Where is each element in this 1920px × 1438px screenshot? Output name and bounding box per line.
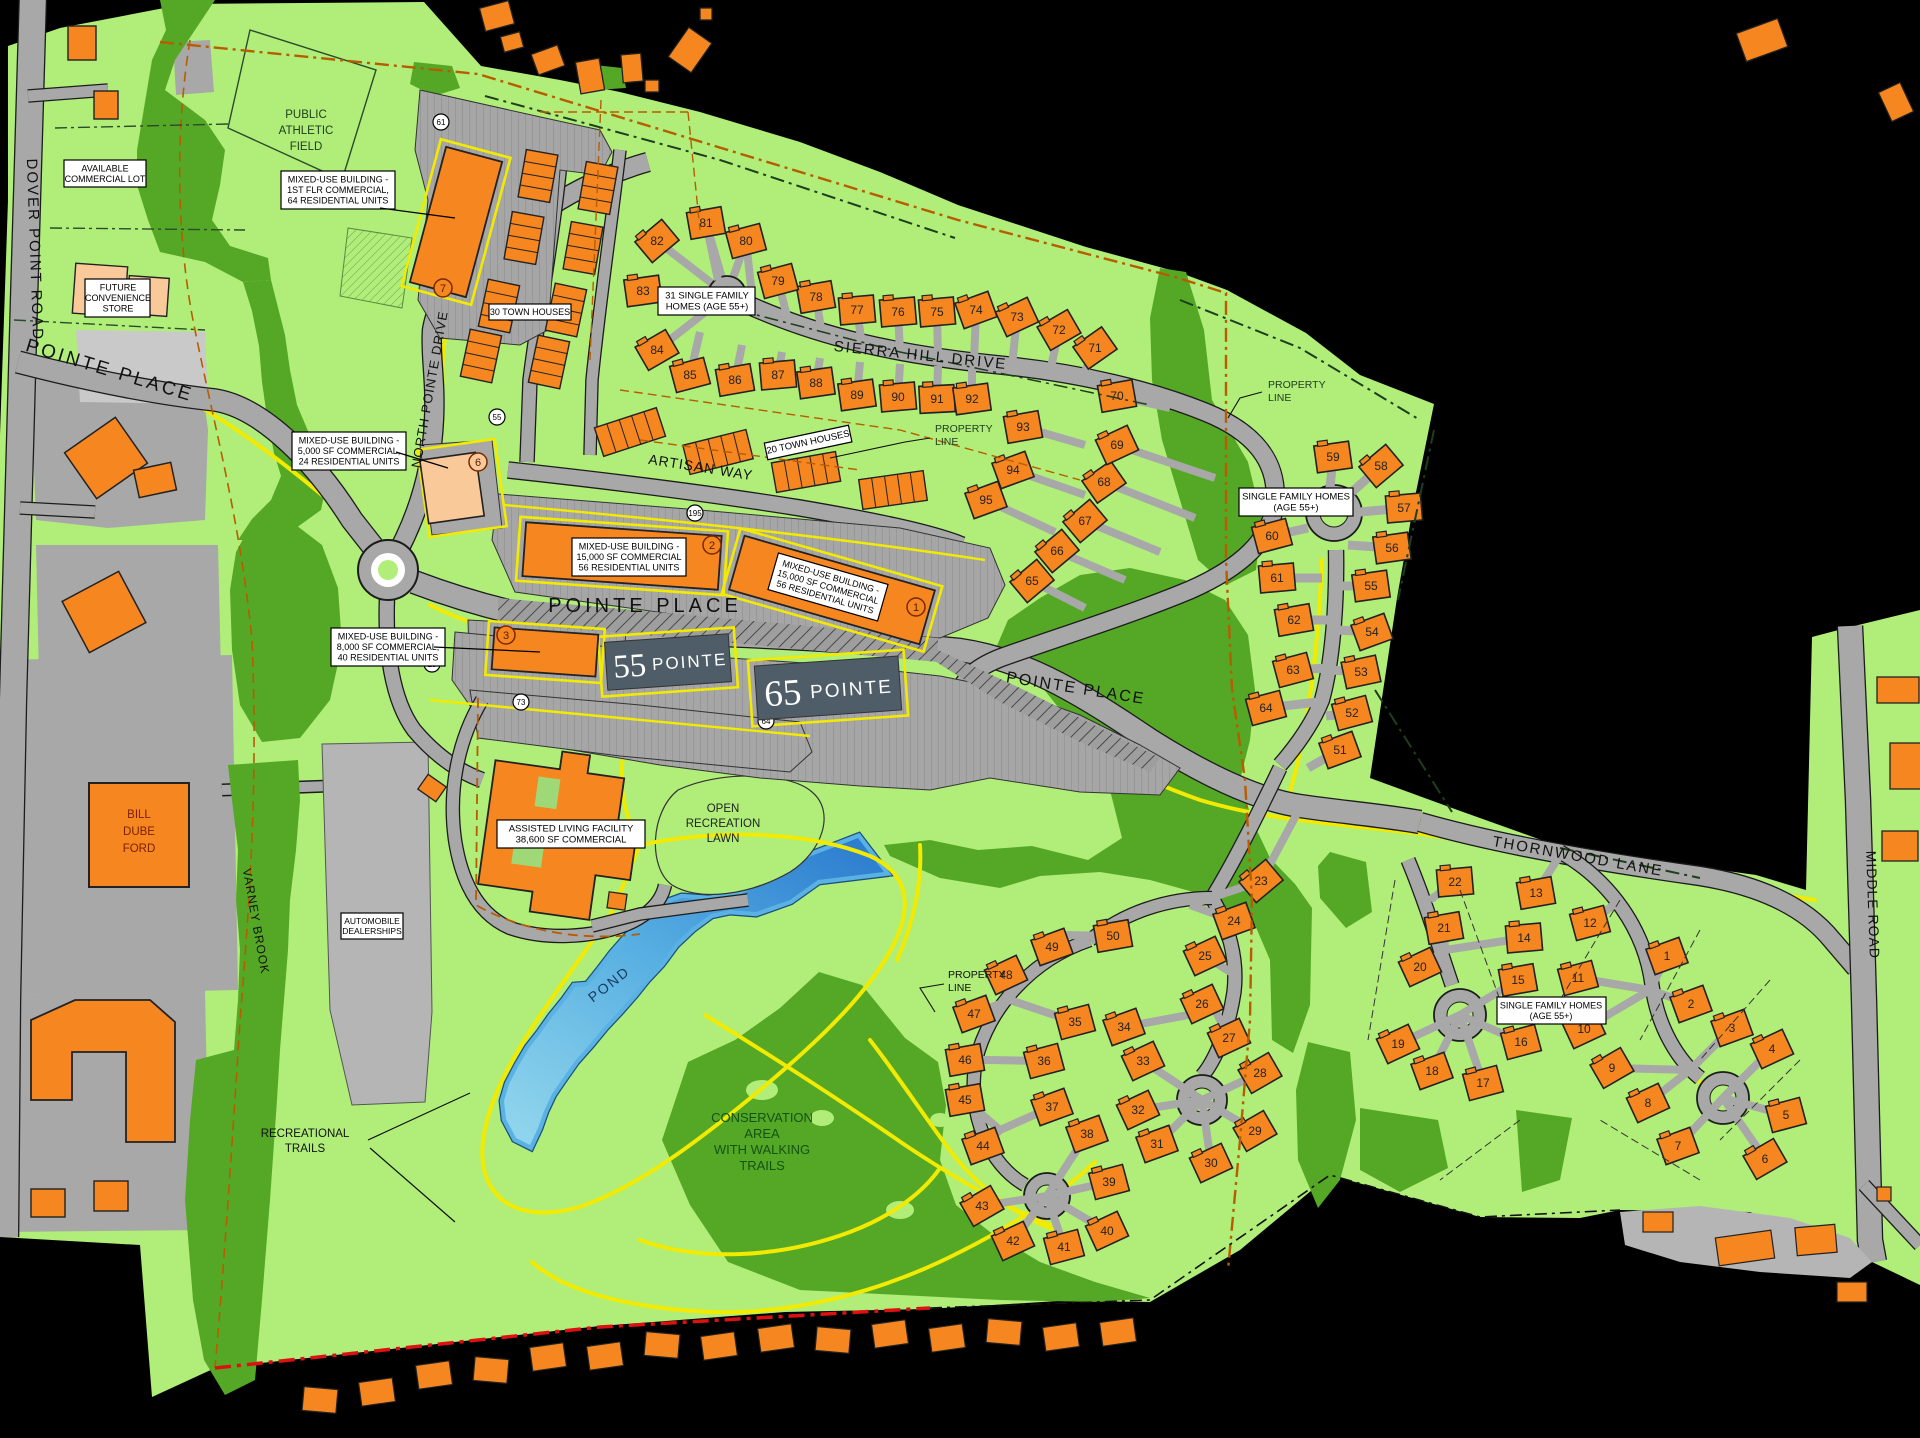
svg-text:53: 53 — [1354, 665, 1368, 679]
svg-text:69: 69 — [1110, 438, 1124, 452]
svg-text:24: 24 — [1227, 914, 1241, 928]
svg-text:FUTURE: FUTURE — [100, 282, 137, 292]
svg-text:87: 87 — [771, 368, 785, 382]
svg-text:MIXED-USE BUILDING -: MIXED-USE BUILDING - — [579, 541, 680, 551]
svg-text:40: 40 — [1100, 1224, 1114, 1238]
svg-text:8,000 SF COMMERCIAL,: 8,000 SF COMMERCIAL, — [337, 642, 440, 652]
svg-text:27: 27 — [1222, 1031, 1236, 1045]
svg-text:73: 73 — [1010, 310, 1024, 324]
svg-text:54: 54 — [1365, 625, 1379, 639]
svg-text:DEALERSHIPS: DEALERSHIPS — [342, 926, 402, 936]
svg-text:74: 74 — [969, 303, 983, 317]
svg-text:83: 83 — [636, 284, 650, 298]
svg-text:SINGLE FAMILY HOMES: SINGLE FAMILY HOMES — [1500, 1001, 1602, 1011]
svg-text:3: 3 — [503, 630, 509, 642]
svg-text:26: 26 — [1195, 997, 1209, 1011]
svg-text:65: 65 — [763, 672, 803, 715]
svg-text:81: 81 — [699, 216, 713, 230]
svg-text:49: 49 — [1045, 940, 1059, 954]
svg-text:55: 55 — [1364, 579, 1378, 593]
svg-text:52: 52 — [1345, 706, 1359, 720]
svg-text:LINE: LINE — [948, 982, 971, 994]
svg-text:85: 85 — [683, 368, 697, 382]
svg-text:43: 43 — [975, 1199, 989, 1213]
svg-text:66: 66 — [1050, 544, 1064, 558]
svg-text:36: 36 — [1037, 1054, 1051, 1068]
svg-text:(AGE 55+): (AGE 55+) — [1273, 503, 1318, 514]
svg-text:4: 4 — [1769, 1042, 1776, 1056]
svg-text:29: 29 — [1248, 1124, 1262, 1138]
svg-text:16: 16 — [1514, 1035, 1528, 1049]
svg-text:30: 30 — [1204, 1156, 1218, 1170]
svg-text:AVAILABLE: AVAILABLE — [81, 164, 128, 174]
svg-text:59: 59 — [1326, 450, 1340, 464]
svg-text:32: 32 — [1131, 1103, 1145, 1117]
svg-text:7: 7 — [440, 283, 446, 295]
svg-text:91: 91 — [930, 392, 944, 406]
svg-text:ASSISTED LIVING FACILITY: ASSISTED LIVING FACILITY — [509, 824, 634, 835]
svg-text:COMMERCIAL LOT: COMMERCIAL LOT — [65, 174, 146, 184]
svg-text:24 RESIDENTIAL UNITS: 24 RESIDENTIAL UNITS — [299, 456, 400, 466]
svg-text:1ST FLR COMMERCIAL,: 1ST FLR COMMERCIAL, — [287, 185, 389, 195]
svg-text:72: 72 — [1052, 323, 1066, 337]
svg-text:77: 77 — [850, 303, 864, 317]
svg-text:51: 51 — [1333, 743, 1347, 757]
svg-text:86: 86 — [728, 373, 742, 387]
svg-text:TRAILS: TRAILS — [739, 1158, 785, 1173]
svg-text:ATHLETIC: ATHLETIC — [279, 125, 334, 137]
svg-text:88: 88 — [809, 376, 823, 390]
svg-text:41: 41 — [1057, 1240, 1071, 1254]
svg-text:21: 21 — [1437, 921, 1451, 935]
svg-text:195: 195 — [688, 509, 702, 518]
svg-text:78: 78 — [809, 290, 823, 304]
svg-text:6: 6 — [475, 457, 481, 469]
svg-text:AREA: AREA — [744, 1126, 780, 1141]
svg-text:CONSERVATION: CONSERVATION — [711, 1110, 813, 1125]
svg-text:67: 67 — [1078, 514, 1092, 528]
svg-text:7: 7 — [1675, 1139, 1682, 1153]
svg-text:18: 18 — [1425, 1064, 1439, 1078]
svg-text:5,000 SF COMMERCIAL,: 5,000 SF COMMERCIAL, — [298, 446, 401, 456]
svg-text:39: 39 — [1102, 1175, 1116, 1189]
svg-text:73: 73 — [517, 698, 526, 707]
svg-text:64: 64 — [1259, 701, 1273, 715]
svg-text:70: 70 — [1110, 389, 1124, 403]
svg-text:94: 94 — [1006, 463, 1020, 477]
svg-text:8: 8 — [1645, 1096, 1652, 1110]
svg-text:LINE: LINE — [1268, 392, 1291, 404]
svg-text:BILL: BILL — [127, 809, 151, 821]
svg-text:95: 95 — [979, 493, 993, 507]
svg-text:PROPERTY: PROPERTY — [1268, 379, 1326, 391]
svg-text:1: 1 — [1664, 949, 1671, 963]
svg-text:2: 2 — [1688, 997, 1695, 1011]
svg-text:60: 60 — [1265, 529, 1279, 543]
svg-text:61: 61 — [1270, 571, 1284, 585]
svg-text:55: 55 — [493, 413, 502, 422]
svg-text:PROPERTY: PROPERTY — [948, 969, 1006, 981]
svg-text:50: 50 — [1106, 929, 1120, 943]
svg-text:OPEN: OPEN — [707, 803, 740, 815]
svg-text:31: 31 — [1150, 1137, 1164, 1151]
svg-text:13: 13 — [1529, 886, 1543, 900]
svg-text:92: 92 — [965, 392, 979, 406]
svg-text:FIELD: FIELD — [290, 141, 323, 153]
svg-text:HOMES (AGE 55+): HOMES (AGE 55+) — [666, 302, 749, 313]
svg-text:MIXED-USE BUILDING -: MIXED-USE BUILDING - — [338, 631, 439, 641]
svg-text:79: 79 — [771, 274, 785, 288]
svg-text:9: 9 — [1609, 1061, 1616, 1075]
svg-text:POINTE PLACE: POINTE PLACE — [548, 595, 742, 617]
svg-text:MIXED-USE BUILDING -: MIXED-USE BUILDING - — [288, 174, 389, 184]
svg-text:44: 44 — [976, 1139, 990, 1153]
svg-text:3: 3 — [1729, 1021, 1736, 1035]
svg-text:AUTOMOBILE: AUTOMOBILE — [344, 916, 400, 926]
svg-text:64 RESIDENTIAL UNITS: 64 RESIDENTIAL UNITS — [288, 195, 389, 205]
svg-text:34: 34 — [1117, 1020, 1131, 1034]
svg-text:RECREATION: RECREATION — [686, 818, 761, 830]
svg-text:TRAILS: TRAILS — [285, 1143, 326, 1155]
svg-text:58: 58 — [1374, 459, 1388, 473]
svg-text:42: 42 — [1006, 1234, 1020, 1248]
svg-text:37: 37 — [1045, 1100, 1059, 1114]
svg-text:23: 23 — [1254, 874, 1268, 888]
svg-text:62: 62 — [1287, 613, 1301, 627]
svg-text:PROPERTY: PROPERTY — [935, 423, 993, 435]
svg-text:75: 75 — [930, 305, 944, 319]
svg-text:LINE: LINE — [935, 436, 958, 448]
svg-text:RECREATIONAL: RECREATIONAL — [261, 1128, 350, 1140]
svg-text:19: 19 — [1391, 1037, 1405, 1051]
svg-text:2: 2 — [709, 540, 715, 552]
svg-text:14: 14 — [1517, 931, 1531, 945]
svg-text:56 RESIDENTIAL UNITS: 56 RESIDENTIAL UNITS — [579, 562, 680, 572]
svg-text:15: 15 — [1511, 973, 1525, 987]
svg-text:DUBE: DUBE — [123, 826, 155, 838]
svg-text:(AGE 55+): (AGE 55+) — [1530, 1011, 1573, 1021]
svg-text:30 TOWN HOUSES: 30 TOWN HOUSES — [490, 307, 570, 317]
svg-text:6: 6 — [1762, 1152, 1769, 1166]
svg-text:47: 47 — [967, 1007, 981, 1021]
svg-text:STORE: STORE — [103, 303, 134, 313]
svg-text:84: 84 — [650, 343, 664, 357]
svg-text:61: 61 — [437, 118, 446, 127]
svg-text:1: 1 — [913, 602, 919, 614]
svg-text:25: 25 — [1198, 949, 1212, 963]
svg-text:65: 65 — [1025, 574, 1039, 588]
svg-text:63: 63 — [1286, 663, 1300, 677]
svg-text:28: 28 — [1253, 1066, 1267, 1080]
svg-text:35: 35 — [1068, 1015, 1082, 1029]
svg-text:FORD: FORD — [123, 843, 156, 855]
svg-text:56: 56 — [1385, 541, 1399, 555]
svg-text:82: 82 — [650, 234, 664, 248]
svg-text:17: 17 — [1476, 1076, 1490, 1090]
svg-text:93: 93 — [1016, 420, 1030, 434]
svg-text:CONVENIENCE: CONVENIENCE — [85, 293, 151, 303]
svg-text:76: 76 — [891, 305, 905, 319]
svg-text:WITH WALKING: WITH WALKING — [714, 1142, 810, 1157]
svg-text:PUBLIC: PUBLIC — [285, 109, 327, 121]
svg-text:31 SINGLE FAMILY: 31 SINGLE FAMILY — [665, 291, 749, 302]
svg-text:38,600 SF COMMERCIAL: 38,600 SF COMMERCIAL — [516, 835, 627, 846]
svg-text:80: 80 — [739, 234, 753, 248]
svg-text:12: 12 — [1583, 916, 1597, 930]
svg-text:5: 5 — [1783, 1108, 1790, 1122]
svg-text:MIXED-USE BUILDING -: MIXED-USE BUILDING - — [299, 435, 400, 445]
svg-text:20: 20 — [1413, 960, 1427, 974]
svg-text:45: 45 — [958, 1093, 972, 1107]
svg-text:55: 55 — [612, 648, 647, 686]
svg-text:57: 57 — [1397, 501, 1411, 515]
svg-text:90: 90 — [891, 390, 905, 404]
svg-text:22: 22 — [1448, 875, 1462, 889]
svg-text:40 RESIDENTIAL UNITS: 40 RESIDENTIAL UNITS — [338, 652, 439, 662]
svg-text:89: 89 — [850, 388, 864, 402]
svg-text:68: 68 — [1097, 475, 1111, 489]
svg-text:15,000 SF COMMERCIAL: 15,000 SF COMMERCIAL — [576, 552, 681, 562]
svg-text:33: 33 — [1136, 1054, 1150, 1068]
svg-text:38: 38 — [1080, 1127, 1094, 1141]
svg-text:SINGLE FAMILY HOMES: SINGLE FAMILY HOMES — [1242, 492, 1350, 503]
svg-text:LAWN: LAWN — [707, 833, 740, 845]
svg-text:71: 71 — [1088, 341, 1102, 355]
svg-text:46: 46 — [958, 1053, 972, 1067]
